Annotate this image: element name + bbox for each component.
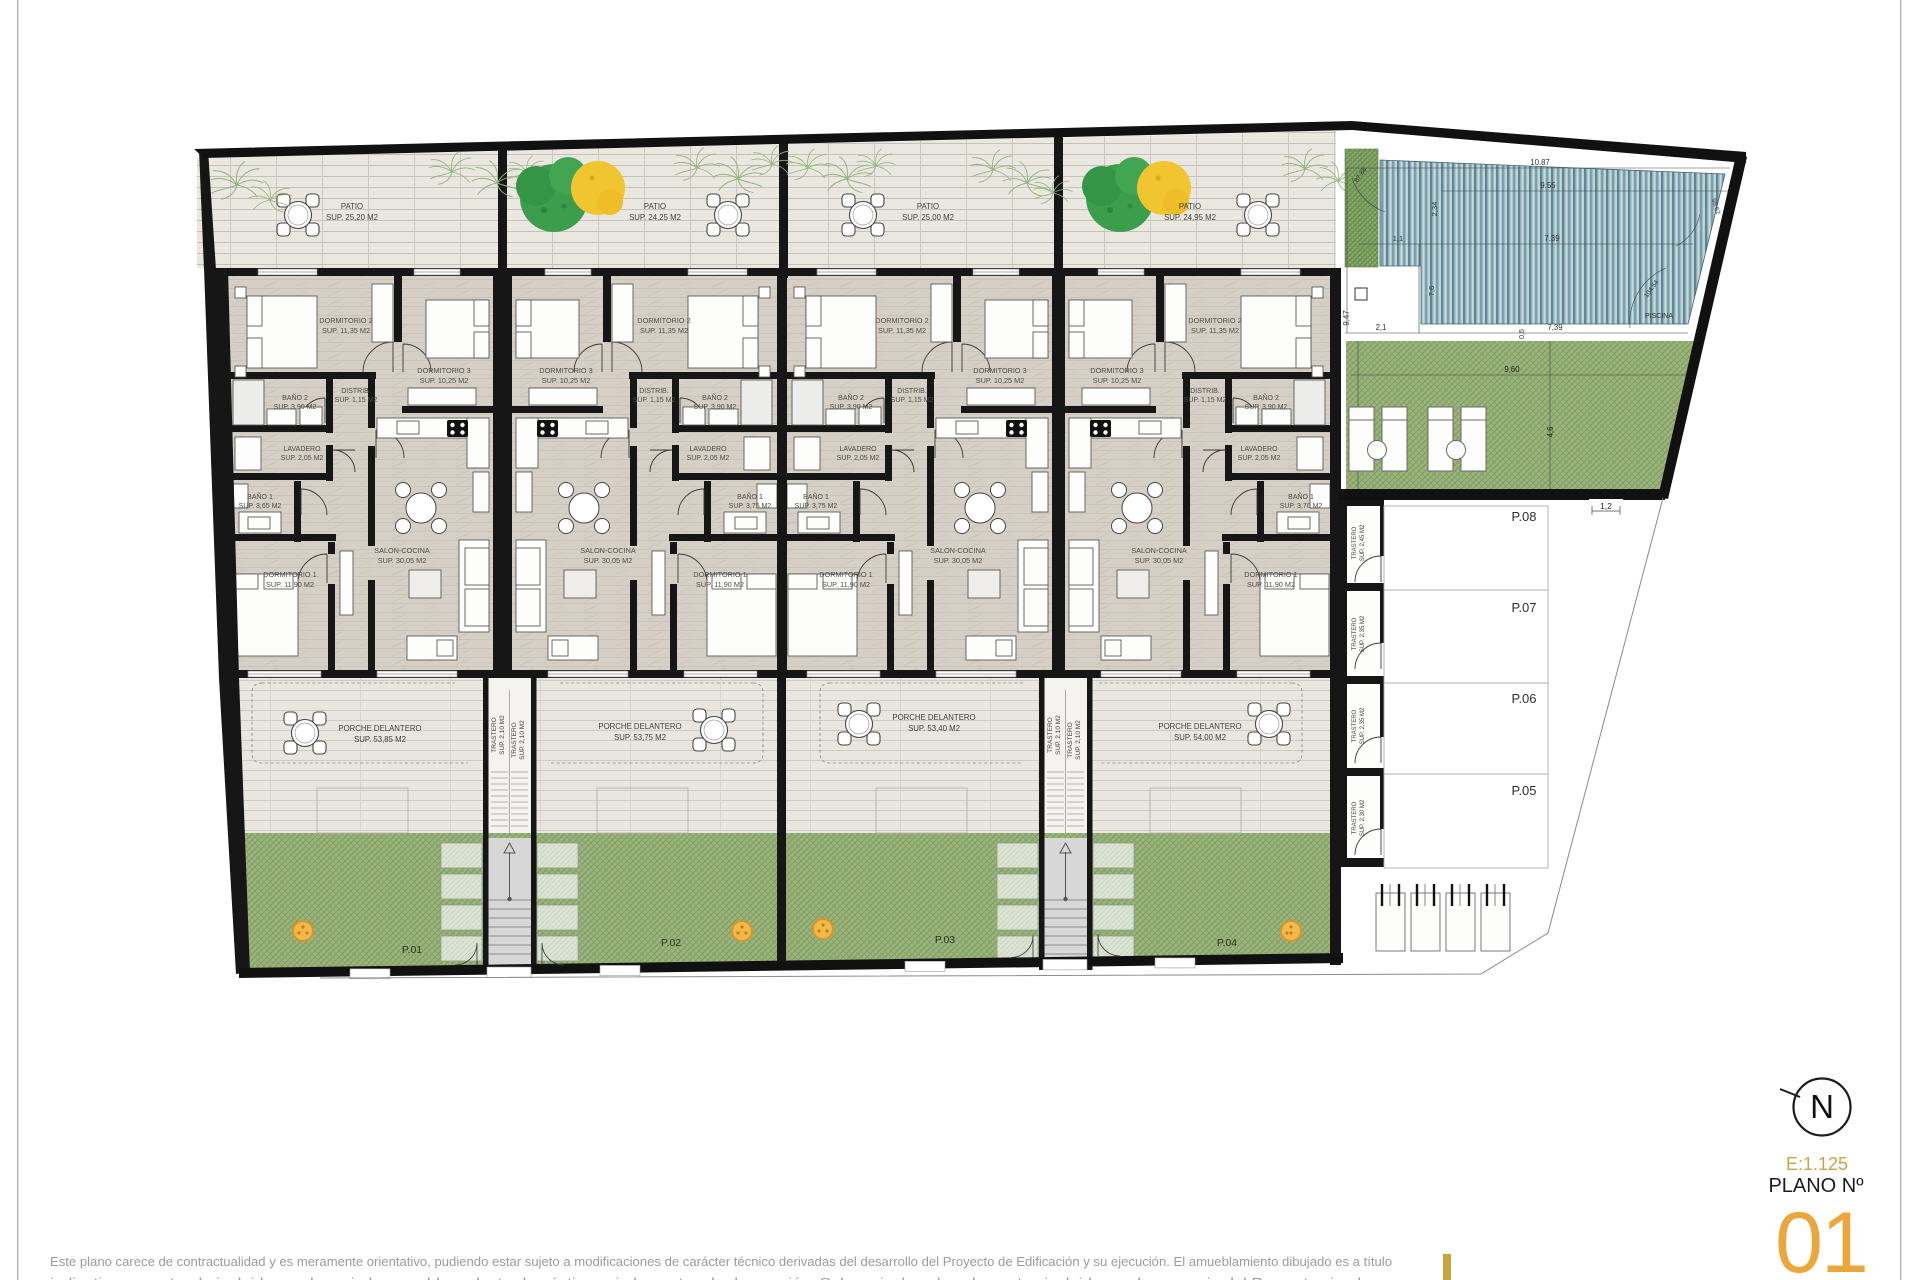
- svg-text:SUP. 30,05 M2: SUP. 30,05 M2: [378, 556, 427, 565]
- svg-text:PORCHE DELANTERO: PORCHE DELANTERO: [1158, 722, 1241, 731]
- svg-text:SUP. 11,90 M2: SUP. 11,90 M2: [696, 580, 744, 589]
- svg-text:DISTRIB.: DISTRIB.: [639, 388, 669, 395]
- svg-text:TRASTERO: TRASTERO: [1352, 617, 1358, 650]
- svg-text:DISTRIB.: DISTRIB.: [897, 388, 927, 395]
- svg-text:indicativo, no estando incluid: indicativo, no estando incluido en el pr…: [50, 1275, 1375, 1280]
- svg-text:DORMITORIO 1: DORMITORIO 1: [1244, 570, 1297, 579]
- svg-text:LAVADERO: LAVADERO: [1240, 446, 1278, 453]
- svg-text:SUP. 3,90 M2: SUP. 3,90 M2: [694, 404, 737, 411]
- svg-text:SALON-COCINA: SALON-COCINA: [580, 546, 636, 555]
- svg-text:SALON-COCINA: SALON-COCINA: [1131, 546, 1187, 555]
- svg-text:SUP. 1,15 M2: SUP. 1,15 M2: [633, 397, 676, 404]
- svg-text:PORCHE DELANTERO: PORCHE DELANTERO: [598, 722, 681, 731]
- svg-text:2,34: 2,34: [1430, 202, 1439, 217]
- svg-text:SUP. 11,90 M2: SUP. 11,90 M2: [822, 580, 870, 589]
- svg-text:DORMITORIO 2: DORMITORIO 2: [875, 316, 928, 325]
- svg-text:SUP. 30,05 M2: SUP. 30,05 M2: [1135, 556, 1184, 565]
- svg-text:SUP. 2,10 M2: SUP. 2,10 M2: [499, 715, 506, 755]
- svg-text:SUP. 3,90 M2: SUP. 3,90 M2: [830, 404, 873, 411]
- svg-text:SUP. 11,35 M2: SUP. 11,35 M2: [640, 326, 688, 335]
- svg-text:SUP. 2,35 M2: SUP. 2,35 M2: [1360, 707, 1366, 744]
- svg-text:DISTRIB.: DISTRIB.: [1190, 388, 1220, 395]
- svg-text:SUP. 10,25 M2: SUP. 10,25 M2: [420, 376, 469, 385]
- svg-text:TRASTERO: TRASTERO: [1352, 526, 1358, 559]
- svg-text:0,5: 0,5: [1519, 329, 1526, 339]
- svg-text:BAÑO 2: BAÑO 2: [702, 393, 728, 402]
- svg-text:P.01: P.01: [402, 944, 422, 956]
- svg-text:9.55: 9.55: [1540, 181, 1556, 190]
- svg-text:SUP. 25,00 M2: SUP. 25,00 M2: [902, 213, 954, 222]
- svg-text:SUP. 30,05 M2: SUP. 30,05 M2: [584, 556, 633, 565]
- svg-text:LAVADERO: LAVADERO: [689, 446, 727, 453]
- svg-text:TRASTERO: TRASTERO: [1352, 801, 1358, 834]
- svg-text:SUP. 3,75 M2: SUP. 3,75 M2: [795, 503, 838, 510]
- svg-text:DORMITORIO 2: DORMITORIO 2: [319, 316, 372, 325]
- svg-text:SUP. 3,75 M2: SUP. 3,75 M2: [729, 503, 772, 510]
- svg-text:BAÑO 1: BAÑO 1: [803, 492, 829, 501]
- svg-text:SUP. 53,85 M2: SUP. 53,85 M2: [354, 735, 406, 744]
- svg-text:PATIO: PATIO: [917, 202, 939, 211]
- svg-text:E:1.125: E:1.125: [1786, 1154, 1848, 1174]
- svg-text:SUP. 25,20 M2: SUP. 25,20 M2: [326, 213, 378, 222]
- svg-text:SUP. 3,65 M2: SUP. 3,65 M2: [239, 503, 282, 510]
- svg-text:SUP. 53,75 M2: SUP. 53,75 M2: [614, 733, 666, 742]
- svg-text:DORMITORIO 2: DORMITORIO 2: [1188, 316, 1241, 325]
- svg-text:P.05: P.05: [1511, 783, 1536, 798]
- svg-text:SUP. 1,15 M2: SUP. 1,15 M2: [335, 397, 378, 404]
- svg-text:1,1: 1,1: [1393, 234, 1403, 243]
- svg-text:9,60: 9,60: [1504, 365, 1520, 374]
- svg-text:TRASTERO: TRASTERO: [1067, 722, 1074, 757]
- svg-text:PATIO: PATIO: [341, 202, 363, 211]
- svg-text:P.02: P.02: [661, 937, 681, 949]
- svg-text:SUP. 2,05 M2: SUP. 2,05 M2: [1238, 455, 1281, 462]
- svg-text:TRASTERO: TRASTERO: [1047, 717, 1054, 752]
- svg-text:SUP. 11,35 M2: SUP. 11,35 M2: [878, 326, 926, 335]
- svg-text:9,47: 9,47: [1342, 310, 1351, 325]
- svg-text:BAÑO 2: BAÑO 2: [282, 393, 308, 402]
- svg-text:TRASTERO: TRASTERO: [511, 722, 518, 757]
- svg-text:SUP. 11,90 M2: SUP. 11,90 M2: [1247, 580, 1295, 589]
- svg-text:TRASTERO: TRASTERO: [1352, 709, 1358, 742]
- svg-text:10.87: 10.87: [1530, 158, 1550, 167]
- svg-text:SUP. 3,90 M2: SUP. 3,90 M2: [274, 404, 317, 411]
- svg-text:SUP. 2,35 M2: SUP. 2,35 M2: [1360, 615, 1366, 652]
- svg-text:P.08: P.08: [1511, 509, 1536, 524]
- svg-text:SUP. 2,05 M2: SUP. 2,05 M2: [837, 455, 880, 462]
- svg-text:DORMITORIO 3: DORMITORIO 3: [539, 366, 592, 375]
- svg-text:PORCHE DELANTERO: PORCHE DELANTERO: [892, 713, 975, 722]
- svg-text:7,39: 7,39: [1547, 323, 1562, 332]
- svg-text:SUP. 10,25 M2: SUP. 10,25 M2: [542, 376, 591, 385]
- svg-text:BAÑO 2: BAÑO 2: [1253, 393, 1279, 402]
- svg-text:P.03: P.03: [935, 934, 955, 946]
- svg-text:P.06: P.06: [1511, 691, 1536, 706]
- svg-text:2,1: 2,1: [1376, 323, 1387, 332]
- svg-text:LAVADERO: LAVADERO: [839, 446, 877, 453]
- svg-text:SUP. 3,70 M2: SUP. 3,70 M2: [1280, 503, 1323, 510]
- svg-text:1,2: 1,2: [1600, 501, 1612, 511]
- svg-text:P.04: P.04: [1217, 937, 1237, 949]
- svg-text:DORMITORIO 2: DORMITORIO 2: [637, 316, 690, 325]
- svg-text:SUP. 54,00 M2: SUP. 54,00 M2: [1174, 733, 1226, 742]
- svg-text:DISTRIB.: DISTRIB.: [341, 388, 371, 395]
- svg-text:4,6: 4,6: [1546, 427, 1555, 438]
- svg-text:SUP. 10,25 M2: SUP. 10,25 M2: [1093, 376, 1142, 385]
- svg-text:DORMITORIO 1: DORMITORIO 1: [819, 570, 872, 579]
- svg-text:PISCINA: PISCINA: [1645, 313, 1673, 320]
- svg-text:SUP. 1,15 M2: SUP. 1,15 M2: [891, 397, 934, 404]
- svg-text:BAÑO 1: BAÑO 1: [737, 492, 763, 501]
- svg-text:PLANO Nº: PLANO Nº: [1768, 1175, 1864, 1197]
- svg-text:SUP. 2,30 M2: SUP. 2,30 M2: [1360, 799, 1366, 836]
- svg-text:DORMITORIO 1: DORMITORIO 1: [263, 570, 316, 579]
- svg-text:SUP. 2,10 M2: SUP. 2,10 M2: [519, 720, 526, 760]
- svg-text:DORMITORIO 3: DORMITORIO 3: [417, 366, 470, 375]
- svg-text:SUP. 11,35 M2: SUP. 11,35 M2: [322, 326, 370, 335]
- svg-text:SUP. 3,90 M2: SUP. 3,90 M2: [1245, 404, 1288, 411]
- svg-text:N: N: [1810, 1088, 1834, 1125]
- svg-text:SUP. 2,45 M2: SUP. 2,45 M2: [1360, 524, 1366, 561]
- svg-text:BAÑO 1: BAÑO 1: [247, 492, 273, 501]
- svg-text:7.39: 7.39: [1544, 234, 1559, 243]
- svg-text:SUP. 30,05 M2: SUP. 30,05 M2: [934, 556, 983, 565]
- svg-text:SUP. 2,10 M2: SUP. 2,10 M2: [1055, 715, 1062, 755]
- svg-text:BAÑO 2: BAÑO 2: [838, 393, 864, 402]
- svg-text:SALON-COCINA: SALON-COCINA: [374, 546, 430, 555]
- svg-text:7,6: 7,6: [1427, 286, 1436, 296]
- svg-text:SUP. 53,40 M2: SUP. 53,40 M2: [908, 724, 960, 733]
- svg-text:SUP. 1,15 M2: SUP. 1,15 M2: [1184, 397, 1227, 404]
- svg-text:PATIO: PATIO: [644, 202, 666, 211]
- svg-text:SUP. 2,05 M2: SUP. 2,05 M2: [281, 455, 324, 462]
- svg-text:DORMITORIO 1: DORMITORIO 1: [693, 570, 746, 579]
- svg-text:DORMITORIO 3: DORMITORIO 3: [1090, 366, 1143, 375]
- svg-text:SUP. 2,05 M2: SUP. 2,05 M2: [687, 455, 730, 462]
- svg-text:SUP. 10,25 M2: SUP. 10,25 M2: [976, 376, 1025, 385]
- svg-text:BAÑO 1: BAÑO 1: [1288, 492, 1314, 501]
- svg-text:SUP. 24,25 M2: SUP. 24,25 M2: [629, 213, 681, 222]
- svg-text:SUP. 11,90 M2: SUP. 11,90 M2: [266, 580, 314, 589]
- svg-text:Este plano carece de contractu: Este plano carece de contractualidad y e…: [50, 1254, 1392, 1269]
- svg-text:TRASTERO: TRASTERO: [491, 717, 498, 752]
- svg-text:SUP. 2,10 M2: SUP. 2,10 M2: [1075, 720, 1082, 760]
- svg-text:DORMITORIO 3: DORMITORIO 3: [973, 366, 1026, 375]
- svg-text:SALON-COCINA: SALON-COCINA: [930, 546, 986, 555]
- svg-text:SUP. 24,95 M2: SUP. 24,95 M2: [1164, 213, 1216, 222]
- svg-text:LAVADERO: LAVADERO: [283, 446, 321, 453]
- svg-text:SUP. 11,35 M2: SUP. 11,35 M2: [1191, 326, 1239, 335]
- svg-text:PORCHE DELANTERO: PORCHE DELANTERO: [338, 724, 421, 733]
- svg-text:P.07: P.07: [1511, 600, 1536, 615]
- svg-text:PATIO: PATIO: [1179, 202, 1201, 211]
- svg-text:01: 01: [1775, 1195, 1867, 1280]
